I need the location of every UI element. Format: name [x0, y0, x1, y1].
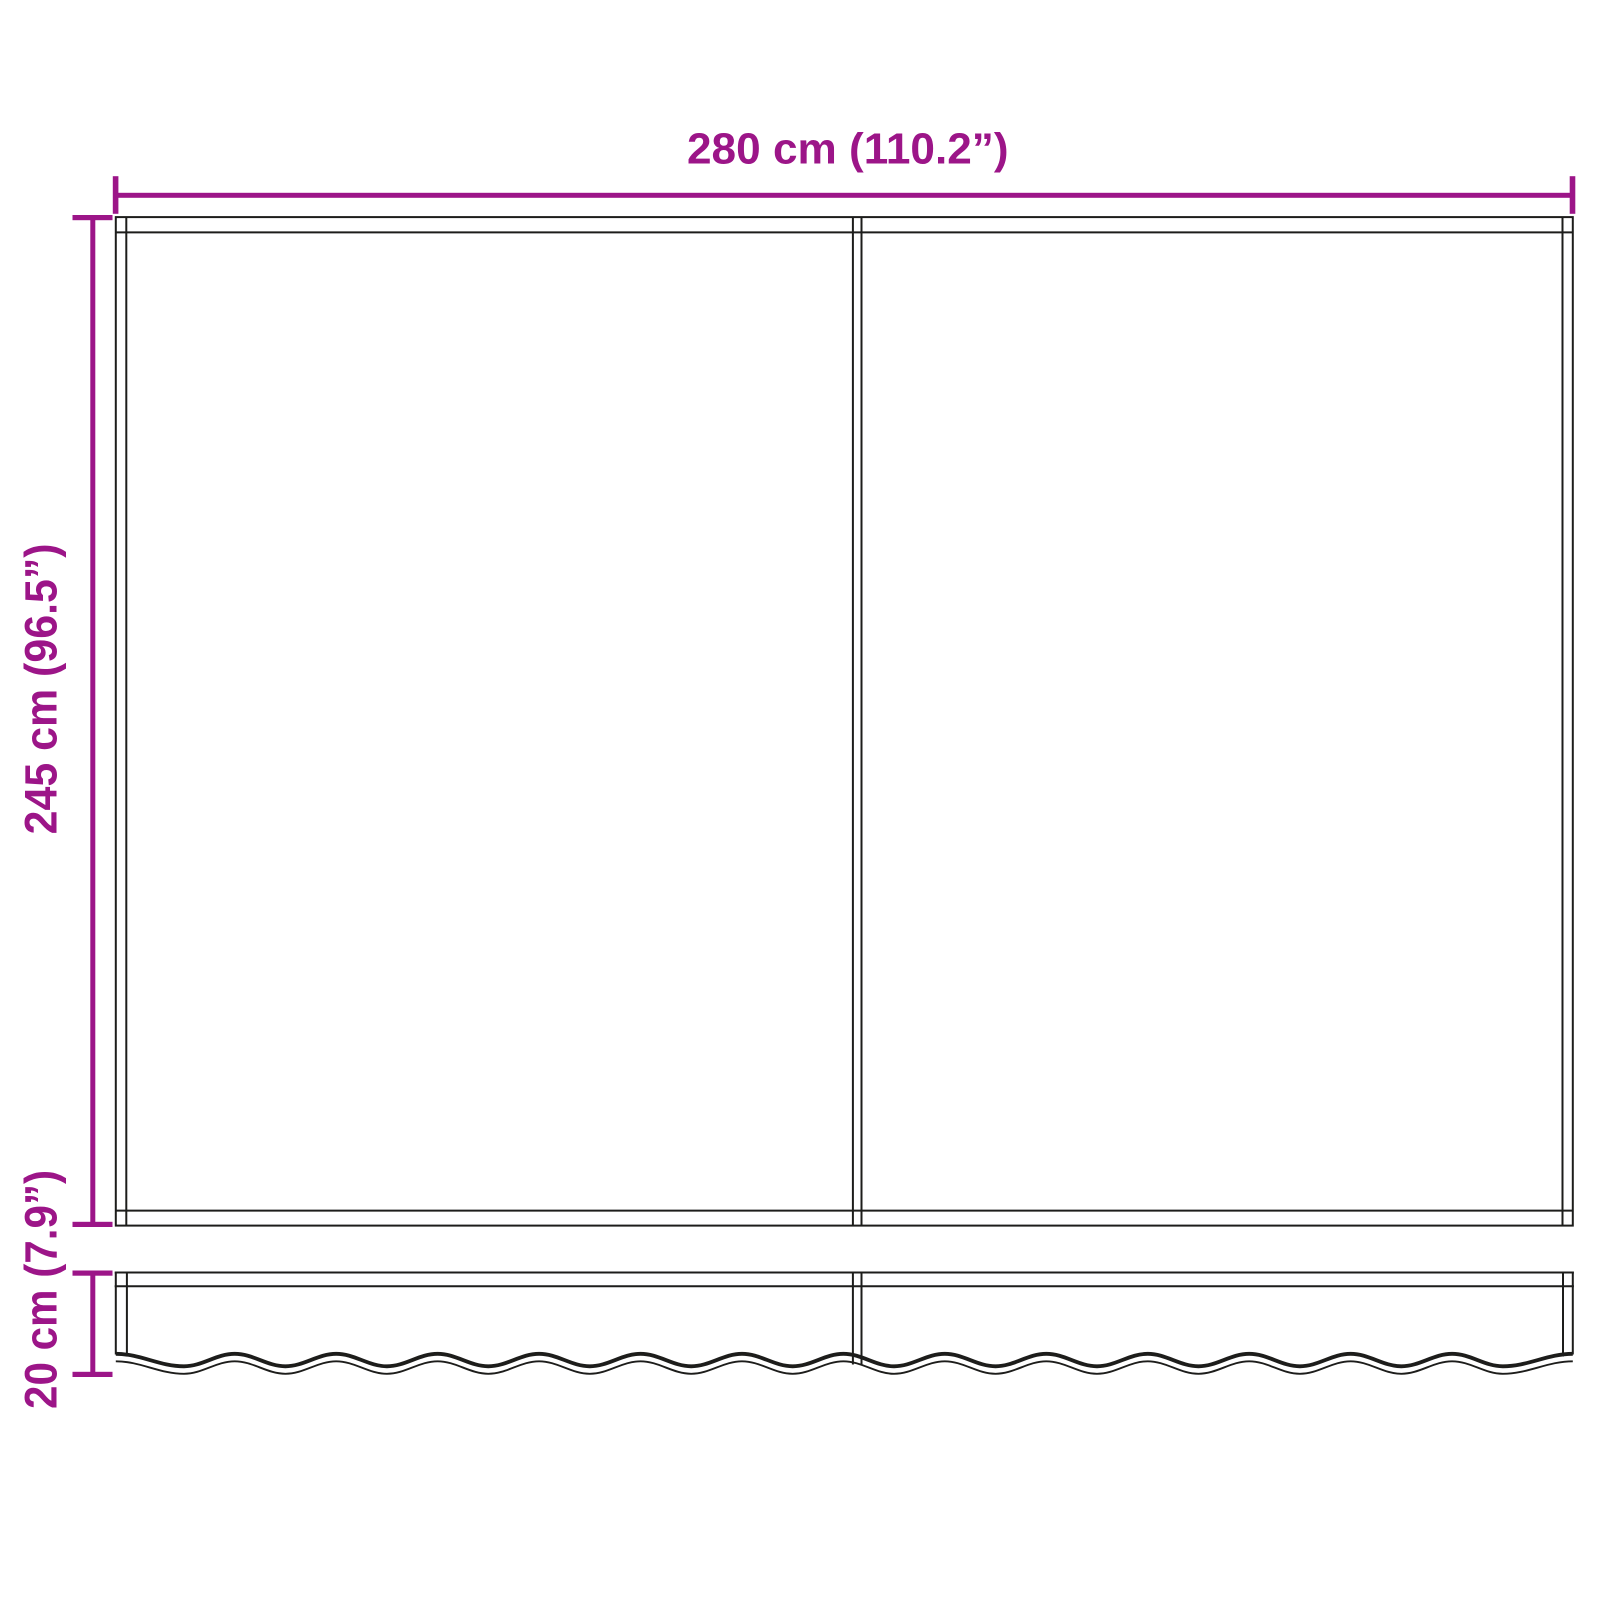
svg-text:245 cm (96.5”): 245 cm (96.5”) [15, 543, 66, 834]
svg-text:20 cm (7.9”): 20 cm (7.9”) [15, 1170, 66, 1409]
svg-text:280 cm (110.2”): 280 cm (110.2”) [687, 124, 1009, 173]
